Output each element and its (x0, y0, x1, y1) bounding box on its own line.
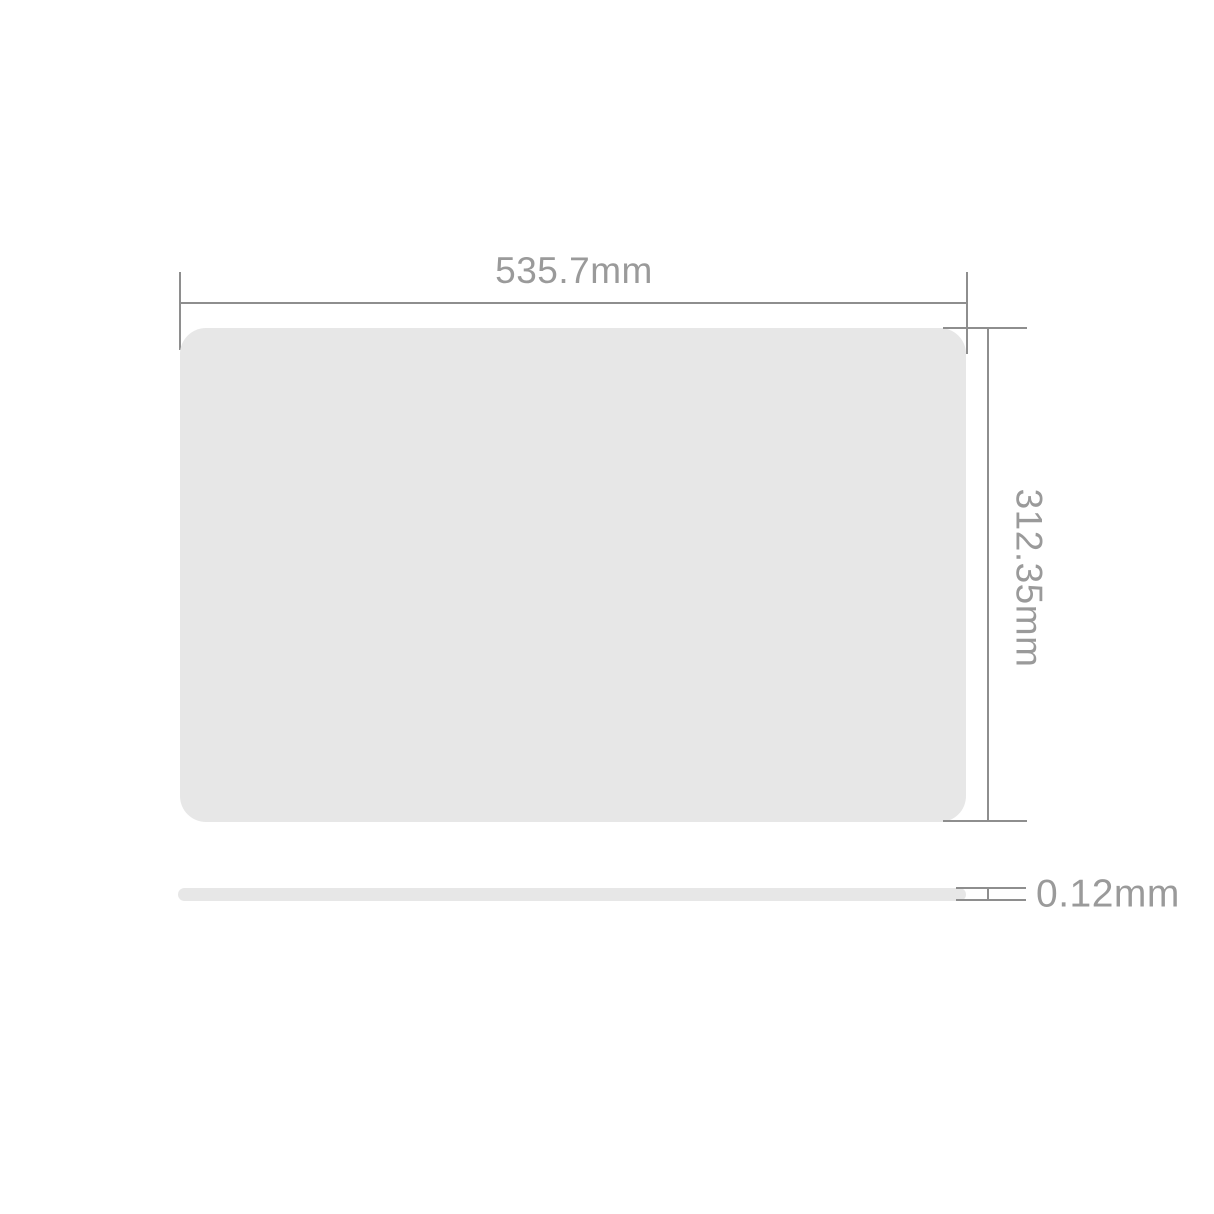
dimension-diagram: 535.7mm 312.35mm 0.12mm (0, 0, 1214, 1214)
height-dimension-tick-bottom (943, 820, 1027, 822)
width-dimension-tick-left (179, 272, 181, 350)
thickness-extension-line-bottom (956, 899, 1026, 901)
width-dimension-line (180, 302, 968, 304)
thickness-extension-line-top (956, 887, 1026, 889)
width-dimension-tick-right (966, 272, 968, 354)
product-front-view (180, 328, 966, 822)
thickness-dimension-tick (987, 887, 989, 901)
height-dimension-tick-top (943, 327, 1027, 329)
thickness-dimension-label: 0.12mm (1036, 875, 1180, 914)
width-dimension-label: 535.7mm (180, 252, 968, 289)
height-dimension-label: 312.35mm (1011, 489, 1048, 668)
height-dimension-line (987, 328, 989, 822)
product-side-view (178, 888, 966, 901)
